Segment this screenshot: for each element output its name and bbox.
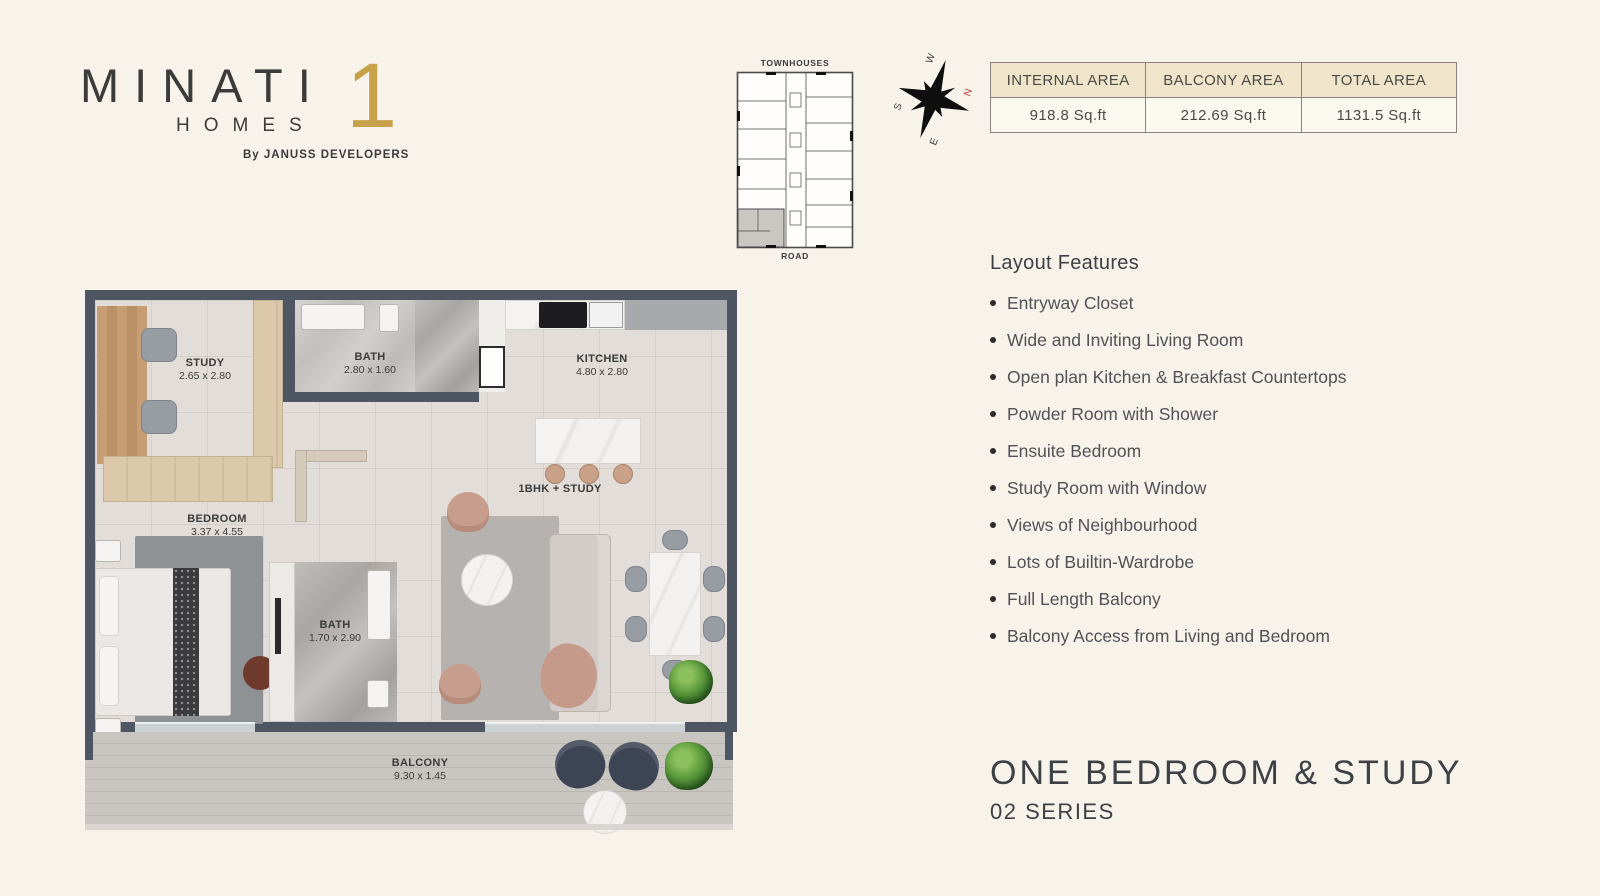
- entry-door: [479, 346, 505, 388]
- bullet-icon: [990, 559, 996, 565]
- bar-stool: [545, 464, 565, 484]
- unit-title: ONE BEDROOM & STUDY: [990, 754, 1463, 793]
- brand-name: MINATI: [80, 59, 326, 112]
- key-plan-top-label: TOWNHOUSES: [735, 58, 855, 68]
- bullet-icon: [990, 337, 996, 343]
- study-closet: [253, 300, 283, 468]
- area-table-value: 212.69 Sq.ft: [1146, 98, 1300, 132]
- sliding-door: [485, 722, 685, 732]
- unit-series: 02 SERIES: [990, 799, 1463, 825]
- balcony-edge: [85, 824, 733, 830]
- feature-item: Open plan Kitchen & Breakfast Countertop…: [990, 367, 1480, 387]
- desk-chair: [141, 328, 177, 362]
- brand-logo: MINATI 1 HOMES By JANUSS DEVELOPERS: [80, 58, 410, 161]
- feature-item: Wide and Inviting Living Room: [990, 330, 1480, 350]
- feature-item: Study Room with Window: [990, 478, 1480, 498]
- key-plan-drawing: [736, 71, 854, 249]
- bar-stool: [579, 464, 599, 484]
- unit-title-block: ONE BEDROOM & STUDY 02 SERIES: [990, 754, 1463, 825]
- bullet-icon: [990, 596, 996, 602]
- interior-wall: [283, 300, 295, 398]
- balcony-wall: [85, 732, 93, 760]
- area-table-value: 918.8 Sq.ft: [991, 98, 1145, 132]
- tv: [275, 598, 281, 654]
- dining-chair: [625, 566, 647, 592]
- bed-runner: [173, 568, 199, 716]
- feature-item: Ensuite Bedroom: [990, 441, 1480, 461]
- bathtub: [301, 304, 365, 330]
- nightstand: [95, 540, 121, 562]
- window-stub: [729, 465, 737, 481]
- compass-north-label: N: [962, 87, 975, 98]
- area-table: INTERNAL AREA BALCONY AREA TOTAL AREA 91…: [990, 62, 1457, 133]
- balcony-wall: [725, 732, 733, 760]
- area-table-header: TOTAL AREA: [1302, 63, 1456, 97]
- compass-west-label: W: [924, 52, 938, 65]
- floor-plan: STUDY 2.65 x 2.80 BATH 2.80 x 1.60 KITCH…: [85, 290, 737, 842]
- feature-item: Entryway Closet: [990, 293, 1480, 313]
- bullet-icon: [990, 522, 996, 528]
- pillow: [99, 646, 119, 706]
- armchair: [439, 664, 481, 704]
- vanity: [367, 570, 391, 640]
- layout-features-title: Layout Features: [990, 252, 1480, 275]
- feature-item: Balcony Access from Living and Bedroom: [990, 626, 1480, 646]
- feature-item: Views of Neighbourhood: [990, 515, 1480, 535]
- area-table-value: 1131.5 Sq.ft: [1302, 98, 1456, 132]
- compass-icon: W N S E: [891, 50, 975, 148]
- layout-features-list: Entryway Closet Wide and Inviting Living…: [990, 293, 1480, 646]
- kitchen-island: [535, 418, 641, 464]
- area-table-header: BALCONY AREA: [1146, 63, 1300, 97]
- bullet-icon: [990, 300, 996, 306]
- compass-east-label: E: [928, 137, 941, 147]
- wardrobe: [103, 456, 273, 502]
- dining-table: [649, 552, 701, 656]
- dining-chair: [703, 616, 725, 642]
- dining-chair: [703, 566, 725, 592]
- layout-features-panel: Layout Features Entryway Closet Wide and…: [990, 252, 1480, 663]
- bar-stool: [613, 464, 633, 484]
- interior-wall: [283, 392, 479, 402]
- bullet-icon: [990, 448, 996, 454]
- tv-console: [269, 562, 295, 722]
- bullet-icon: [990, 633, 996, 639]
- stove: [539, 302, 587, 328]
- brand-byline: By JANUSS DEVELOPERS: [243, 149, 410, 161]
- coffee-table: [461, 554, 513, 606]
- bullet-icon: [990, 411, 996, 417]
- area-table-header: INTERNAL AREA: [991, 63, 1145, 97]
- toilet: [367, 680, 389, 708]
- dining-chair: [625, 616, 647, 642]
- key-plan-bottom-label: ROAD: [735, 251, 855, 261]
- shower: [415, 300, 479, 392]
- sliding-door: [135, 722, 255, 732]
- entryway-closet: [295, 450, 307, 522]
- key-plan: TOWNHOUSES ROAD: [735, 58, 855, 261]
- desk-chair: [141, 400, 177, 434]
- dining-chair: [662, 530, 688, 550]
- feature-item: Powder Room with Shower: [990, 404, 1480, 424]
- armchair: [447, 492, 489, 532]
- window-stub: [729, 660, 737, 676]
- feature-item: Full Length Balcony: [990, 589, 1480, 609]
- feature-item: Lots of Builtin-Wardrobe: [990, 552, 1480, 572]
- fridge: [589, 302, 623, 328]
- study-desk: [97, 306, 147, 464]
- brand-numeral: 1: [346, 50, 397, 142]
- bullet-icon: [990, 374, 996, 380]
- bullet-icon: [990, 485, 996, 491]
- compass-south-label: S: [892, 102, 905, 112]
- pillow: [99, 576, 119, 636]
- entry-lobby: [625, 300, 727, 330]
- toilet: [379, 304, 399, 332]
